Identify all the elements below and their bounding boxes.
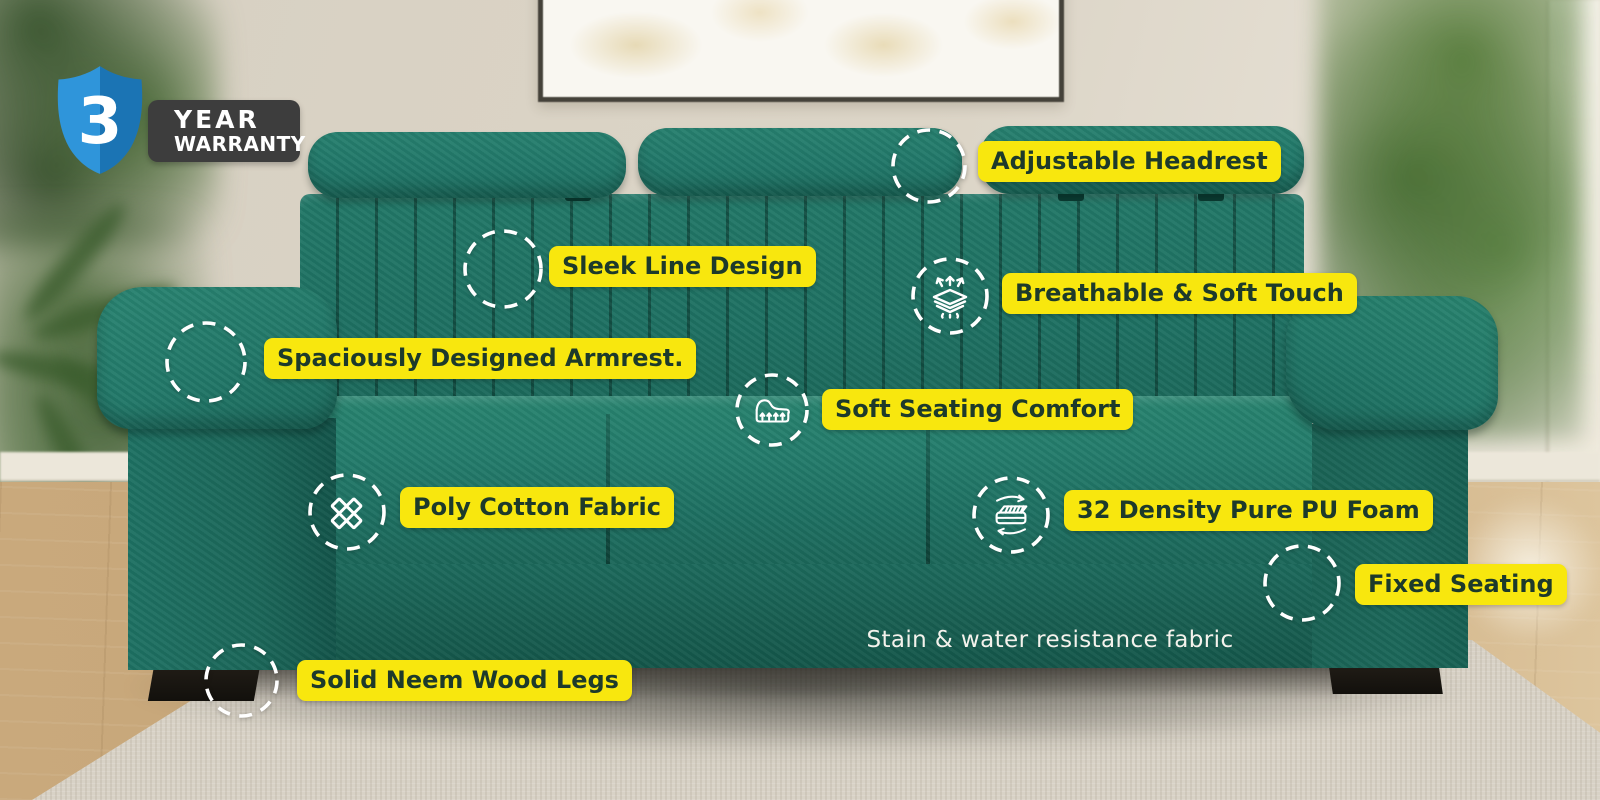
callout-circle-pu-foam — [971, 475, 1051, 555]
label-adjustable-headrest: Adjustable Headrest — [978, 141, 1281, 182]
label-pu-foam: 32 Density Pure PU Foam — [1064, 490, 1433, 531]
wall-art — [538, 0, 1064, 102]
foam-mattress-icon — [988, 492, 1034, 538]
callout-circle-soft-seating — [734, 372, 810, 448]
warranty-shield-icon: 3 — [48, 64, 152, 176]
stain-resistance-caption: Stain & water resistance fabric — [845, 627, 1255, 653]
callout-circle-armrest — [164, 320, 248, 404]
fabric-weave-icon — [325, 490, 369, 534]
product-infographic: YEAR WARRANTY 3 — [0, 0, 1600, 800]
warranty-warranty-text: WARRANTY — [174, 133, 300, 156]
warranty-year-text: YEAR — [174, 107, 300, 133]
callout-circle-poly-cotton — [307, 472, 387, 552]
callout-circle-fixed-seating — [1262, 543, 1342, 623]
callout-circle-breathable — [910, 256, 990, 336]
callout-circle-sleek-line — [462, 228, 544, 310]
headrest-left — [308, 132, 626, 198]
label-sleek-line-design: Sleek Line Design — [549, 246, 816, 287]
callout-circle-adjustable-headrest — [890, 127, 968, 205]
label-soft-seating-comfort: Soft Seating Comfort — [822, 389, 1133, 430]
label-poly-cotton-fabric: Poly Cotton Fabric — [400, 487, 674, 528]
label-breathable-soft-touch: Breathable & Soft Touch — [1002, 273, 1357, 314]
breathable-fabric-icon — [926, 272, 974, 320]
label-neem-wood-legs: Solid Neem Wood Legs — [297, 660, 632, 701]
callout-circle-neem-legs — [203, 642, 280, 719]
seat-cushion-icon — [749, 387, 795, 433]
label-fixed-seating: Fixed Seating — [1355, 564, 1567, 605]
armrest-left-body — [128, 418, 336, 670]
warranty-number: 3 — [78, 84, 123, 159]
warranty-badge: YEAR WARRANTY — [148, 100, 300, 162]
cushion-seam — [926, 414, 930, 564]
label-spacious-armrest: Spaciously Designed Armrest. — [264, 338, 696, 379]
armrest-right-pillow — [1286, 296, 1498, 430]
